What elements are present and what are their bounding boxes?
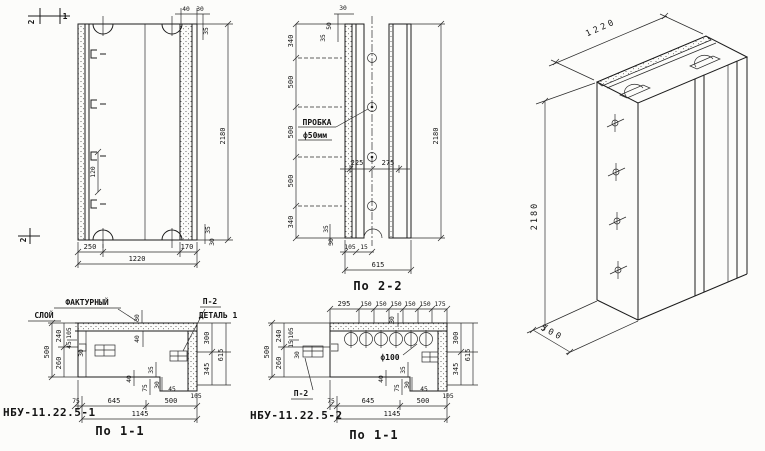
dim-iso-depth: 500: [539, 323, 565, 343]
dim-v340-top: 340: [287, 35, 295, 48]
dim-hook-spacing: 120: [90, 166, 97, 178]
dim-side-top-30: 30: [339, 5, 347, 12]
dim-iso-height: 2180: [530, 202, 540, 230]
dim-a-step-45: 45: [168, 386, 176, 393]
dim-top-30: 30: [196, 6, 204, 13]
embedded-detail: [303, 346, 323, 357]
dim-a-step-30: 30: [154, 381, 161, 389]
dim-v340-bottom: 340: [287, 216, 295, 229]
dim-b-left-105: 105: [288, 327, 295, 339]
detail-note-line1: П-2: [203, 297, 218, 306]
dim-b-right-300: 300: [452, 332, 460, 345]
detail-leader: [305, 358, 313, 390]
dim-b-left-500: 500: [263, 346, 271, 359]
dim-b-bot-645: 645: [362, 397, 375, 405]
dim-bottom-250: 250: [84, 243, 97, 251]
dim-a-left-45: 45: [66, 341, 73, 349]
anchor-hook: [91, 152, 106, 160]
dim-a-bot-500: 500: [165, 397, 178, 405]
dim-b-step-40: 40: [378, 375, 385, 383]
dim-a-step-40: 40: [126, 375, 133, 383]
dim-a-step-35: 35: [148, 366, 155, 374]
detail-note-line2: ДЕТАЛЬ 1: [199, 311, 238, 320]
mark-nbu-1: НБУ-11.22.5-1: [3, 406, 96, 419]
dim-v500-1: 500: [287, 76, 295, 89]
caption-b-po-1-1: По 1-1: [349, 428, 398, 442]
dim-b-top-295: 295: [338, 300, 351, 308]
iso-block: [597, 36, 747, 320]
side-panel-outline: [345, 16, 411, 246]
dim-bottom-170: 170: [181, 243, 194, 251]
dim-b105: 105: [344, 244, 356, 251]
lifting-socket: [364, 229, 382, 238]
dim-edge-35: 35: [205, 226, 212, 234]
dim-b-bot-1145: 1145: [384, 410, 401, 418]
hole-note-f100: ф100: [380, 353, 399, 362]
dim-b-right-615: 615: [464, 349, 472, 362]
anchor-hook: [91, 100, 106, 108]
dim-b-wall-30: 30: [294, 351, 301, 359]
blueprint-canvas: 2 1 2 40 30 35 120 2180 250 170 1220 35 …: [0, 0, 765, 451]
anchor-hook: [91, 50, 106, 58]
facture-note-line2: СЛОЙ: [34, 309, 53, 320]
dim-b-left-15: 15: [288, 340, 295, 348]
caption-po-2-2: По 2-2: [353, 279, 402, 293]
dim-top-35: 35: [203, 27, 210, 35]
facture-band-right: [180, 24, 192, 240]
dim-side-edge-35: 35: [323, 225, 330, 233]
dim-a-top-30: 30: [134, 314, 141, 322]
dim-b-left-240: 240: [275, 330, 283, 343]
view-side-elevation: ПРОБКА ф50мм 30 50 35 340 500 500 500 34…: [287, 5, 445, 293]
dim-b-step-30: 30: [404, 381, 411, 389]
dim-b-top-150: 150: [375, 301, 387, 308]
section-a-outline: [75, 323, 197, 391]
dim-v500-2: 500: [287, 126, 295, 139]
front-panel-outline: [78, 16, 197, 248]
dim-a-left-240: 240: [55, 330, 63, 343]
dim-a-inner-40: 40: [134, 335, 141, 343]
dim-b-right-345: 345: [452, 363, 460, 376]
dim-a-right-615: 615: [217, 349, 225, 362]
dim-b-step-45: 45: [420, 386, 428, 393]
dim-side-top-50: 50: [326, 22, 333, 30]
dim-edge-30: 30: [209, 238, 216, 246]
dim-front-height: 2180: [219, 128, 227, 145]
side-dimension-lines: [293, 14, 445, 274]
dim-b-top-30: 30: [389, 316, 396, 324]
section-a-body: [75, 323, 197, 391]
dim-b-top-150: 150: [419, 301, 431, 308]
dim-a-bot-1145: 1145: [132, 410, 149, 418]
dim-a-wall-30: 30: [78, 349, 85, 357]
anchor-hook: [331, 344, 338, 351]
dim-side-top-35: 35: [320, 34, 327, 42]
view-isometric: 1220 2180 500: [527, 13, 747, 355]
dim-iso-width: 1220: [584, 17, 618, 39]
plug-note-line1: ПРОБКА: [303, 118, 332, 127]
dim-a-bot-645: 645: [108, 397, 121, 405]
embedded-detail: [95, 345, 115, 356]
dim-a-foot-105: 105: [190, 393, 202, 400]
view-front-elevation: 2 1 2 40 30 35 120 2180 250 170 1220 35 …: [18, 6, 233, 268]
dim-side-width: 615: [372, 261, 385, 269]
dim-a-left-500: 500: [43, 346, 51, 359]
dim-a-right-300: 300: [203, 332, 211, 345]
dim-a-bot-75: 75: [72, 398, 80, 405]
dim-b-top-150: 150: [360, 301, 372, 308]
dim-a-step-75: 75: [142, 384, 149, 392]
anchor-hook: [91, 200, 106, 208]
caption-a-po-1-1: По 1-1: [95, 424, 144, 438]
front-section-marks: [18, 8, 70, 244]
dim-b-step-75: 75: [394, 384, 401, 392]
dim-top-40: 40: [182, 6, 190, 13]
view-section-b: 295 150 150 150 150 150 175 30 ф100 П-2 …: [250, 300, 478, 442]
dim-b-top-150: 150: [404, 301, 416, 308]
iso-top-face: [597, 36, 747, 103]
cut-mark-1: 1: [63, 12, 68, 21]
dim-a-left-260: 260: [55, 357, 63, 370]
dim-b-top-150: 150: [390, 301, 402, 308]
dim-b-left-260: 260: [275, 357, 283, 370]
dim-b15: 15: [360, 244, 368, 251]
dim-front-width: 1220: [129, 255, 146, 263]
plug-note-line2: ф50мм: [303, 131, 327, 140]
cut-mark-2-bottom: 2: [19, 237, 28, 242]
dim-v500-3: 500: [287, 175, 295, 188]
dim-a-right-345: 345: [203, 363, 211, 376]
dim-b-step-35: 35: [400, 366, 407, 374]
detail-note-p2: П-2: [294, 389, 309, 398]
facture-band-left: [78, 24, 85, 240]
cut-mark-2: 2: [27, 19, 36, 24]
dim-side-edge-30: 30: [328, 238, 335, 246]
facture-note-line1: ФАКТУРНЫЙ: [65, 296, 109, 307]
dim-h275: 275: [382, 159, 395, 167]
mark-nbu-2: НБУ-11.22.5-2: [250, 409, 343, 422]
view-section-a: ФАКТУРНЫЙ СЛОЙ П-2 ДЕТАЛЬ 1 500 240 260 …: [3, 296, 237, 438]
dim-side-height: 2180: [432, 128, 440, 145]
section-b-outline: [303, 323, 447, 391]
iso-facture-band: [597, 36, 711, 86]
dim-h225: 225: [351, 159, 364, 167]
panel-working-drawing: 2 1 2 40 30 35 120 2180 250 170 1220 35 …: [0, 0, 765, 451]
dim-b-bot-75: 75: [327, 398, 335, 405]
dim-b-foot-105: 105: [442, 393, 454, 400]
dim-b-bot-500: 500: [417, 397, 430, 405]
dim-b-top-175: 175: [434, 301, 446, 308]
dim-a-left-105: 105: [66, 327, 73, 339]
